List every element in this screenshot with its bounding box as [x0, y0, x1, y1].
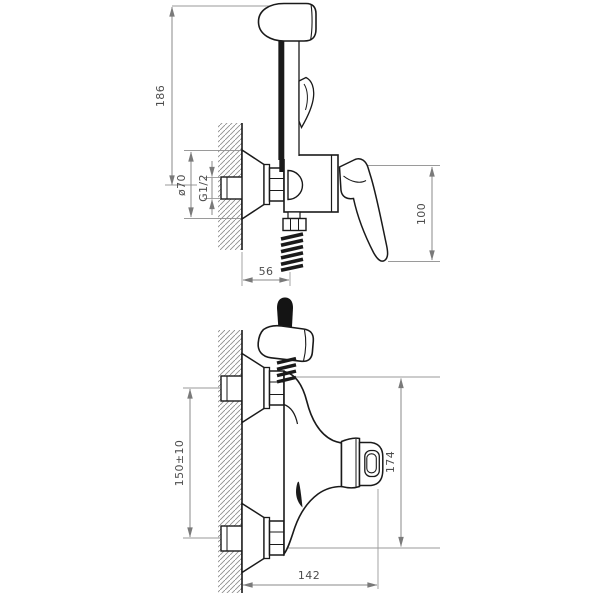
dim-label-56: 56 [259, 265, 274, 278]
dimension-pipe-spacing: 150±10 [173, 388, 220, 538]
dim-label-g12: G1/2 [197, 174, 210, 202]
dim-label-150: 150±10 [173, 440, 186, 487]
wall-pipe-bottom [221, 526, 242, 551]
lever-handle-front [342, 438, 383, 488]
wall-section-front [218, 330, 242, 593]
top-view: 186 ø70 G1/2 100 [154, 4, 440, 287]
mixer-body-front [284, 372, 342, 555]
mixer-body [284, 155, 338, 212]
dim-label-100: 100 [415, 203, 428, 225]
technical-drawing-canvas: 186 ø70 G1/2 100 [0, 0, 600, 600]
dim-label-186: 186 [154, 85, 167, 107]
hand-shower-docked [258, 298, 313, 362]
dim-label-142: 142 [298, 569, 320, 582]
escutcheon-bottom [242, 504, 284, 573]
connection-nut [270, 168, 285, 201]
hand-shower-trigger [299, 78, 314, 128]
hand-shower-head [258, 4, 316, 42]
hand-shower-handle [279, 40, 299, 172]
dim-label-174: 174 [384, 451, 397, 473]
dim-label-dia70: ø70 [175, 174, 188, 196]
lever-knob-recess-inner [367, 454, 377, 473]
shower-hose-coil [281, 234, 303, 270]
dimension-thread-size: G1/2 [197, 161, 220, 215]
wall-pipe-top [221, 376, 242, 401]
escutcheon [242, 150, 270, 219]
hose-outlet [283, 212, 306, 231]
lever-handle [340, 159, 388, 261]
technical-drawing-page: 186 ø70 G1/2 100 [0, 0, 600, 600]
bottom-view: 150±10 174 142 [173, 298, 440, 594]
